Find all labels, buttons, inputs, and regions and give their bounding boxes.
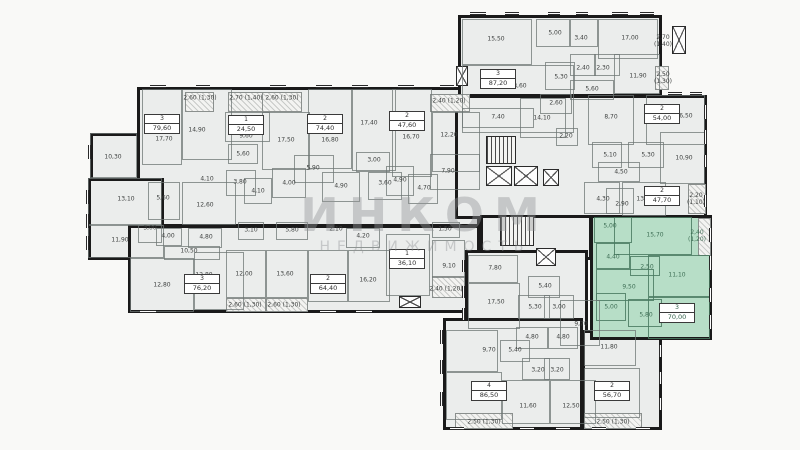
room-area-label: 4,00 — [282, 181, 295, 188]
unit-room-count: 4 — [472, 382, 506, 391]
room-area-label: 17,70 — [155, 137, 172, 144]
window — [612, 12, 628, 15]
room-area-label: 5,40 — [508, 348, 521, 355]
room-area-label: 2,40 (1,20) — [688, 230, 706, 244]
room-area-label: 3,60 — [378, 181, 391, 188]
room-area-label: 8,70 — [604, 115, 617, 122]
room-area-label: 4,40 — [606, 255, 619, 262]
window — [659, 345, 662, 357]
room-area-label: 2,20 — [559, 134, 572, 141]
unit-info-box[interactable]: 247,70 — [644, 186, 680, 206]
unit-room-count: 2 — [645, 187, 679, 196]
room-area-label: 4,80 — [525, 335, 538, 342]
unit-room-count: 2 — [645, 105, 679, 114]
room-area-label: 5,80 — [285, 228, 298, 235]
window — [640, 12, 654, 15]
room-area-label: 16,80 — [321, 138, 338, 145]
window — [398, 85, 414, 88]
window — [440, 85, 454, 88]
unit-info-box[interactable]: 124,50 — [228, 115, 264, 135]
room-area-label: 2,10 — [329, 227, 342, 234]
unit-total-area: 24,50 — [229, 125, 263, 134]
room-area-label: 1,50 — [438, 227, 451, 234]
window — [462, 260, 465, 272]
room-area-label: 5,10 — [603, 153, 616, 160]
unit-total-area: 70,00 — [660, 313, 694, 322]
room-area-label: 3,00 — [143, 226, 156, 233]
unit-total-area: 56,70 — [595, 391, 629, 400]
room-area-label: 2,50 (1,30) — [596, 420, 629, 427]
room-area-label: 2,50 (1,30) — [467, 420, 500, 427]
window — [450, 427, 464, 430]
room-area-label: 12,80 — [153, 283, 170, 290]
window — [88, 145, 91, 159]
unit-total-area: 86,50 — [472, 391, 506, 400]
window — [704, 105, 707, 119]
room-area-label: 16,20 — [359, 278, 376, 285]
shaft-x-icon — [536, 248, 556, 266]
window — [440, 330, 443, 344]
unit-room-count: 1 — [390, 250, 424, 259]
room-area-label: 5,30 — [641, 153, 654, 160]
room-area-label: 7,80 — [488, 266, 501, 273]
room-area-label: 11,80 — [600, 345, 617, 352]
room-area-label: 5,90 — [306, 166, 319, 173]
room-area-label: 2,40 — [576, 66, 589, 73]
unit-total-area: 76,20 — [185, 284, 219, 293]
window — [150, 85, 166, 88]
window — [668, 92, 682, 95]
window — [86, 190, 89, 204]
unit-room-count: 2 — [308, 115, 342, 124]
floor-plan: 2,60 (1,30)2,70 (1,40)2,60 (1,30)2,40 (1… — [0, 0, 800, 450]
window — [505, 12, 519, 15]
window — [709, 288, 712, 302]
room-area-label: 5,00 — [603, 224, 616, 231]
unit-total-area: 74,40 — [308, 124, 342, 133]
room-area-label: 17,50 — [487, 300, 504, 307]
room-area-label: 2,60 (1,30) — [183, 96, 216, 103]
unit-room-count: 3 — [185, 275, 219, 284]
room-area-label: 10,30 — [104, 155, 121, 162]
room-area-label: 11,90 — [629, 74, 646, 81]
room-area-label: 4,90 — [334, 184, 347, 191]
room-area-label: 9,10 — [442, 264, 455, 271]
room-area-label: 12,50 — [562, 404, 579, 411]
room-area-label: 3,80 — [233, 180, 246, 187]
room-area-label: 4,70 — [417, 186, 430, 193]
room-area-label: 2,30 — [596, 66, 609, 73]
room-area-label: 5,00 — [604, 305, 617, 312]
shaft-x-icon — [399, 296, 421, 308]
room-area-label: 3,20 — [550, 368, 563, 375]
room-area-label: 11,90 — [111, 238, 128, 245]
room-area-label: 7,40 — [491, 115, 504, 122]
unit-info-box[interactable]: 486,50 — [471, 381, 507, 401]
room-outline — [432, 240, 465, 278]
window — [140, 310, 156, 313]
window — [520, 427, 534, 430]
room-area-label: 2,20 (1,10) — [687, 193, 705, 207]
room-area-label: 12,00 — [235, 272, 252, 279]
unit-info-box[interactable]: 370,00 — [659, 303, 695, 323]
floor-plan-screenshot: 2,60 (1,30)2,70 (1,40)2,60 (1,30)2,40 (1… — [0, 0, 800, 450]
room-area-label: 4,80 — [199, 235, 212, 242]
unit-room-count: 2 — [390, 112, 424, 121]
room-area-label: 16,70 — [402, 135, 419, 142]
room-area-label: 12,20 — [440, 133, 457, 140]
room-area-label: 3,40 — [574, 36, 587, 43]
room-area-label: 5,00 — [548, 31, 561, 38]
room-area-label: 4,30 — [596, 197, 609, 204]
staircase — [486, 136, 516, 164]
window — [548, 12, 560, 15]
room-area-label: 17,00 — [621, 36, 638, 43]
room-outline — [430, 154, 480, 190]
window — [576, 12, 588, 15]
unit-info-box[interactable]: 136,10 — [389, 249, 425, 269]
unit-room-count: 1 — [229, 116, 263, 125]
unit-room-count: 3 — [481, 70, 515, 79]
room-area-label: 2,50 — [640, 265, 653, 272]
unit-total-area: 47,70 — [645, 196, 679, 205]
window — [320, 310, 336, 313]
window — [352, 85, 368, 88]
unit-total-area: 47,60 — [390, 121, 424, 130]
window — [270, 85, 286, 88]
window — [316, 85, 332, 88]
window — [86, 236, 89, 250]
room-area-label: 5,60 — [236, 152, 249, 159]
unit-total-area: 36,10 — [390, 259, 424, 268]
room-area-label: 14,90 — [188, 128, 205, 135]
unit-info-box[interactable]: 256,70 — [594, 381, 630, 401]
shaft-x-icon — [543, 169, 559, 186]
room-area-label: 2,60 (1,30) — [265, 96, 298, 103]
room-area-label: 2,50 (1,30) — [654, 72, 672, 86]
unit-info-box[interactable]: 376,20 — [184, 274, 220, 294]
room-area-label: 9,70 — [482, 348, 495, 355]
room-area-label: 3,00 — [367, 158, 380, 165]
window — [440, 360, 443, 374]
room-area-label: 15,50 — [487, 37, 504, 44]
room-area-label: 15,70 — [646, 233, 663, 240]
room-area-label: 3,20 — [531, 368, 544, 375]
unit-total-area: 87,20 — [481, 79, 515, 88]
room-area-label: 10,90 — [675, 156, 692, 163]
room-area-label: 5,60 — [156, 196, 169, 203]
room-area-label: 4,10 — [251, 189, 264, 196]
room-area-label: 10,50 — [180, 249, 197, 256]
unit-info-box[interactable]: 247,60 — [389, 111, 425, 131]
shaft-x-icon — [672, 26, 686, 54]
room-area-label: 3,00 — [552, 305, 565, 312]
window — [462, 308, 465, 320]
room-outline — [570, 19, 598, 47]
window — [659, 372, 662, 384]
shaft-x-icon — [486, 166, 512, 186]
room-area-label: 7,90 — [441, 169, 454, 176]
unit-room-count: 3 — [145, 115, 179, 124]
room-area-label: 2,60 (1,30) — [267, 303, 300, 310]
window — [709, 315, 712, 329]
room-area-label: 13,10 — [117, 197, 134, 204]
room-area-label: 2,60 — [549, 101, 562, 108]
room-area-label: 4,10 — [200, 177, 213, 184]
room-area-label: 2,40 (1,20) — [429, 287, 462, 294]
room-area-label: 4,50 — [614, 170, 627, 177]
unit-info-box[interactable]: 379,60 — [144, 114, 180, 134]
room-area-label: 5,30 — [554, 75, 567, 82]
staircase — [500, 216, 534, 246]
window — [704, 155, 707, 167]
unit-info-box[interactable]: 254,00 — [644, 104, 680, 124]
unit-total-area: 54,00 — [645, 114, 679, 123]
unit-info-box[interactable]: 274,40 — [307, 114, 343, 134]
room-area-label: 11,10 — [668, 273, 685, 280]
room-area-label: 5,40 — [538, 284, 551, 291]
room-area-label: 14,10 — [533, 116, 550, 123]
unit-room-count: 2 — [595, 382, 629, 391]
window — [556, 427, 570, 430]
room-area-label: 2,70 (1,40) — [654, 35, 672, 49]
window — [592, 427, 606, 430]
unit-total-area: 79,60 — [145, 124, 179, 133]
room-area-label: 5,60 — [585, 87, 598, 94]
window — [704, 130, 707, 144]
window — [709, 228, 712, 242]
room-area-label: 11,60 — [519, 404, 536, 411]
room-area-label: 2,60 (1,30) — [228, 303, 261, 310]
window — [659, 398, 662, 410]
room-area-label: 9,70 — [574, 322, 587, 329]
shaft-x-icon — [514, 166, 538, 186]
window — [470, 12, 486, 15]
unit-room-count: 2 — [311, 275, 345, 284]
window — [690, 92, 702, 95]
unit-info-box[interactable]: 387,20 — [480, 69, 516, 89]
window — [86, 214, 89, 228]
room-area-label: 4,00 — [161, 234, 174, 241]
room-area-label: 12,60 — [196, 203, 213, 210]
room-area-label: 17,50 — [277, 138, 294, 145]
room-area-label: 2,70 (1,40) — [229, 96, 262, 103]
room-area-label: 5,80 — [639, 313, 652, 320]
unit-info-box[interactable]: 264,40 — [310, 274, 346, 294]
window — [356, 310, 372, 313]
window — [709, 256, 712, 270]
unit-total-area: 64,40 — [311, 284, 345, 293]
room-area-label: 2,40 (1,20) — [432, 99, 465, 106]
unit-room-count: 3 — [660, 304, 694, 313]
room-area-label: 4,20 — [356, 234, 369, 241]
room-area-label: 2,90 — [615, 202, 628, 209]
room-area-label: 13,60 — [276, 272, 293, 279]
window — [440, 392, 443, 406]
window — [196, 85, 210, 88]
room-area-label: 4,90 — [393, 178, 406, 185]
room-area-label: 5,30 — [528, 305, 541, 312]
room-area-label: 17,40 — [360, 121, 377, 128]
room-area-label: 9,50 — [622, 285, 635, 292]
room-area-label: 3,10 — [244, 228, 257, 235]
window — [636, 427, 650, 430]
room-area-label: 4,80 — [556, 335, 569, 342]
